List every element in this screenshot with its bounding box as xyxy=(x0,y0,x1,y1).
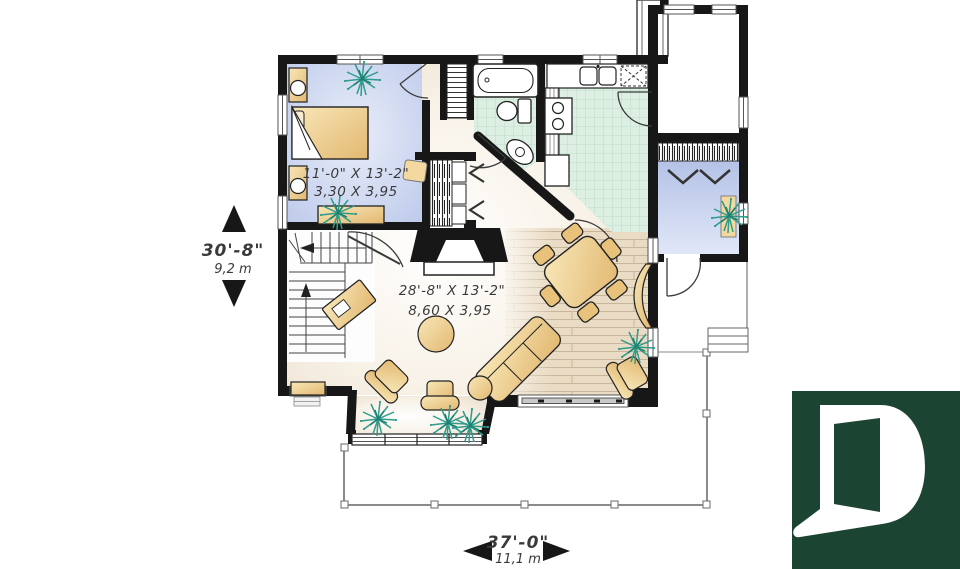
stove xyxy=(545,98,572,134)
width-metric: 11,1 m xyxy=(495,552,541,567)
bench xyxy=(291,382,325,395)
bay-window xyxy=(352,434,482,445)
great-room-dimension-metric: 8,60 X 3,95 xyxy=(408,303,491,319)
patio-door xyxy=(518,395,628,407)
exterior-steps xyxy=(708,328,748,352)
width-dimension: 37'-0" 11,1 m xyxy=(463,533,570,567)
floor-plan-canvas: 11'-0" X 13'-2" 3,30 X 3,95 28'-8" X 13'… xyxy=(0,0,960,569)
arrow-down-icon xyxy=(222,280,246,307)
logo-badge xyxy=(792,391,960,569)
armchair xyxy=(421,381,459,410)
covered-porch-floor xyxy=(658,14,739,133)
floor-plan-page: 11'-0" X 13'-2" 3,30 X 3,95 28'-8" X 13'… xyxy=(0,0,960,569)
round-table xyxy=(468,376,492,400)
depth-imperial: 30'-8" xyxy=(202,241,265,261)
arrow-up-icon xyxy=(222,205,246,232)
width-imperial: 37'-0" xyxy=(487,533,550,553)
linen-closet xyxy=(447,64,467,118)
refrigerator xyxy=(545,155,569,186)
depth-metric: 9,2 m xyxy=(214,262,251,277)
bed xyxy=(292,107,368,159)
bedroom-dimension-label: 11'-0" X 13'-2" xyxy=(303,166,409,182)
great-room-dimension-label: 28'-8" X 13'-2" xyxy=(399,283,505,299)
arrow-right-icon xyxy=(543,541,570,561)
bathtub xyxy=(473,64,538,97)
bedroom-dimension-metric: 3,30 X 3,95 xyxy=(314,184,397,200)
nightstand xyxy=(289,68,307,102)
round-rug xyxy=(418,316,454,352)
fireplace xyxy=(410,228,508,275)
depth-dimension: 30'-8" 9,2 m xyxy=(202,205,265,307)
entry-stoop xyxy=(294,397,320,406)
